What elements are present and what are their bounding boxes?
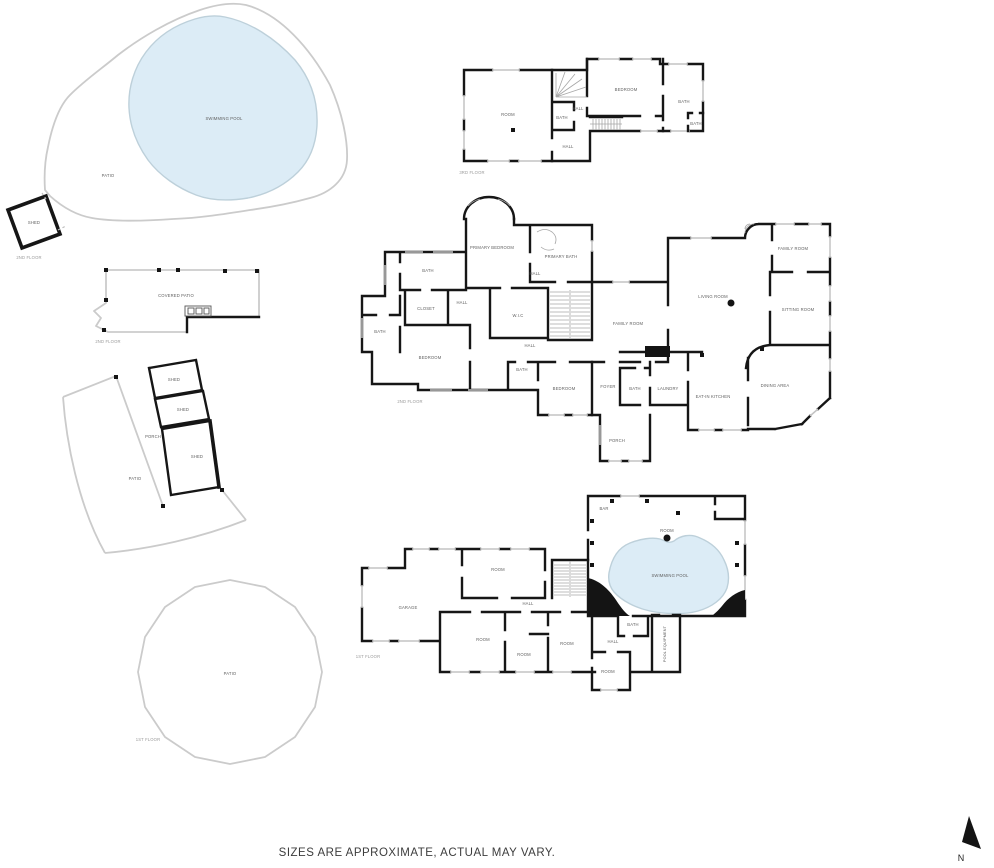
room-label-room-d-f1: ROOM: [560, 641, 574, 646]
room-label-swimming-pool-outdoor: SWIMMING POOL: [205, 116, 243, 121]
room-label-room-a-f1: ROOM: [491, 567, 505, 572]
second-floor-plan: PRIMARY BEDROOM PRIMARY BATH HALL BATH C…: [362, 197, 830, 461]
north-arrow-icon: N: [958, 816, 981, 863]
room-label-bath-c-f3: BATH: [690, 121, 701, 126]
room-label-family-room-a: FAMILY ROOM: [613, 321, 644, 326]
floorplan-page: SWIMMING POOL PATIO SHED 2ND FLOOR COVER…: [0, 0, 994, 868]
room-label-garage: GARAGE: [399, 605, 418, 610]
outdoor-pool-shape: [129, 16, 317, 200]
room-label-living-room: LIVING ROOM: [698, 294, 728, 299]
room-label-hall-a-f1: HALL: [522, 601, 534, 606]
pool-site-plan: SWIMMING POOL PATIO SHED 2ND FLOOR: [8, 4, 347, 260]
room-label-room-e-f1: ROOM: [660, 528, 674, 533]
column: [728, 300, 735, 307]
column: [664, 535, 671, 542]
room-label-bedroom-b-f2: BEDROOM: [553, 386, 576, 391]
room-label-patio-porch-group: PATIO: [129, 476, 142, 481]
room-label-hall-a-f2: HALL: [529, 271, 541, 276]
room-label-hall-a-f3: HALL: [572, 106, 584, 111]
room-label-room-c-f1: ROOM: [517, 652, 531, 657]
patio-columns: [102, 268, 259, 332]
room-label-covered-patio: COVERED PATIO: [158, 293, 194, 298]
room-label-foyer: FOYER: [600, 384, 615, 389]
room-label-porch: PORCH: [145, 434, 161, 439]
north-label: N: [958, 853, 965, 863]
room-label-wic-f2: W.I.C: [513, 313, 524, 318]
room-label-primary-bath: PRIMARY BATH: [545, 254, 578, 259]
room-label-bath-c-f2: BATH: [516, 367, 527, 372]
room-label-pool-equipment: POOL EQUIPMENT: [663, 625, 667, 662]
room-label-patio-site: PATIO: [102, 173, 115, 178]
room-label-bath-d-f2: BATH: [629, 386, 640, 391]
straight-stairs: [590, 119, 622, 130]
room-label-swimming-pool-indoor: SWIMMING POOL: [651, 573, 689, 578]
room-label-bar: BAR: [599, 506, 608, 511]
floor-label-f3: 3RD FLOOR: [459, 170, 484, 175]
floor-label-round-patio: 1ST FLOOR: [136, 737, 161, 742]
room-label-dining-area: DINING AREA: [761, 383, 790, 388]
room-label-shed-bottom: SHED: [191, 454, 203, 459]
room-label-hall-b-f2: HALL: [456, 300, 468, 305]
room-label-eat-in-kitchen: EAT-IN KITCHEN: [696, 394, 731, 399]
floor-label-f1: 1ST FLOOR: [356, 654, 381, 659]
porch-sheds-plan: SHED SHED SHED PORCH PATIO: [63, 360, 246, 553]
room-label-room-f3: ROOM: [501, 112, 515, 117]
basement-stairs: [554, 561, 586, 597]
room-label-hall-b-f3: HALL: [562, 144, 574, 149]
floor-label-f2: 2ND FLOOR: [397, 399, 422, 404]
room-label-bath-b-f3: BATH: [678, 99, 689, 104]
room-label-bath-f1: BATH: [627, 622, 638, 627]
room-label-family-room-b: FAMILY ROOM: [778, 246, 809, 251]
room-label-bedroom-a-f2: BEDROOM: [419, 355, 442, 360]
room-label-room-b-f1: ROOM: [476, 637, 490, 642]
room-label-bedroom-f3: BEDROOM: [615, 87, 638, 92]
room-label-bath-b-f2: BATH: [374, 329, 385, 334]
round-patio-plan: PATIO 1ST FLOOR: [136, 580, 322, 764]
room-label-bath-a-f3: BATH: [556, 115, 567, 120]
room-label-hall-b-f1: HALL: [607, 639, 619, 644]
fan-stairs: [556, 72, 587, 97]
room-label-hall-c-f2: HALL: [524, 343, 536, 348]
covered-patio-plan: COVERED PATIO 2ND FLOOR: [94, 268, 259, 344]
main-stairs: [550, 290, 590, 338]
floor-label-pool-site: 2ND FLOOR: [16, 255, 41, 260]
room-label-shed-middle: SHED: [177, 407, 189, 412]
disclaimer-text: SIZES ARE APPROXIMATE, ACTUAL MAY VARY.: [279, 847, 556, 859]
floor-label-covered-patio: 2ND FLOOR: [95, 339, 120, 344]
room-label-room-f-f1: ROOM: [601, 669, 615, 674]
room-label-porch-f2: PORCH: [609, 438, 625, 443]
room-label-shed-site: SHED: [28, 220, 40, 225]
fireplace: [645, 346, 670, 357]
room-label-primary-bedroom: PRIMARY BEDROOM: [470, 245, 514, 250]
room-label-sitting-room: SITTING ROOM: [782, 307, 815, 312]
room-label-round-patio: PATIO: [224, 671, 237, 676]
third-floor-plan: ROOM BATH HALL BEDROOM BATH BATH HALL 3R…: [459, 59, 703, 175]
first-floor-plan: GARAGE ROOM HALL ROOM ROOM ROOM BAR ROOM…: [356, 496, 745, 690]
room-label-laundry: LAUNDRY: [658, 386, 679, 391]
room-label-bath-a-f2: BATH: [422, 268, 433, 273]
room-label-shed-top: SHED: [168, 377, 180, 382]
room-label-closet-f2: CLOSET: [417, 306, 435, 311]
